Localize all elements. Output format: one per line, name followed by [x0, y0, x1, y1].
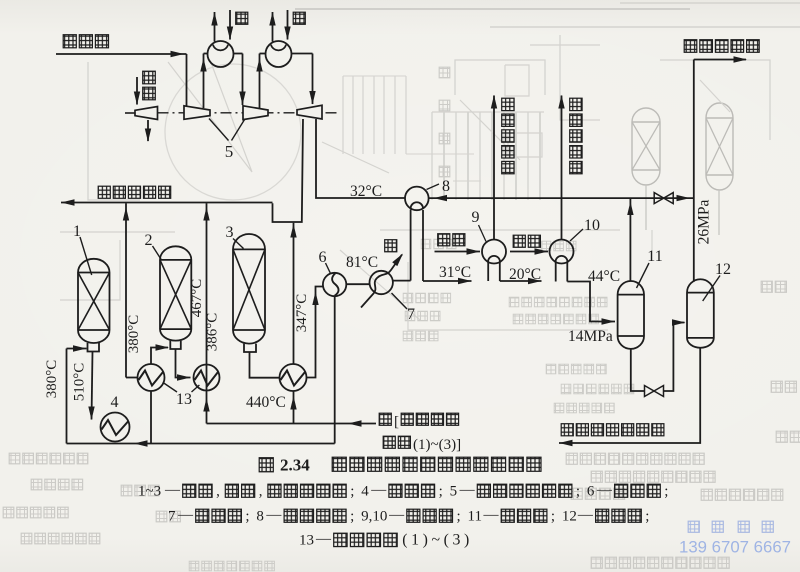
svg-text:2: 2	[145, 232, 153, 249]
svg-text:139 6707 6667: 139 6707 6667	[679, 538, 791, 557]
svg-text:12: 12	[562, 509, 577, 525]
svg-text:347°C: 347°C	[294, 294, 310, 333]
svg-text:—: —	[265, 507, 282, 523]
svg-text:9,10: 9,10	[361, 509, 387, 525]
svg-text:—: —	[459, 482, 476, 498]
svg-text:;: ;	[645, 509, 649, 525]
svg-text:;: ;	[576, 484, 580, 500]
svg-text:81°C: 81°C	[346, 254, 378, 271]
svg-text:26MPa: 26MPa	[696, 199, 713, 244]
svg-text:;: ;	[350, 484, 354, 500]
svg-text:386°C: 386°C	[205, 313, 221, 352]
svg-text:;: ;	[457, 509, 461, 525]
svg-text:32°C: 32°C	[350, 183, 382, 200]
svg-text:—: —	[315, 531, 332, 547]
svg-text:8: 8	[256, 509, 264, 525]
svg-text:31°C: 31°C	[439, 264, 471, 281]
svg-text:(1)~(3)]: (1)~(3)]	[413, 437, 461, 453]
svg-text:6: 6	[587, 484, 595, 500]
svg-text:—: —	[177, 507, 194, 523]
svg-text:11: 11	[647, 248, 662, 265]
svg-text:7: 7	[168, 509, 176, 525]
svg-text:20°C: 20°C	[509, 266, 541, 283]
svg-text:510°C: 510°C	[72, 363, 88, 402]
svg-text:467°C: 467°C	[189, 279, 205, 318]
svg-text:11: 11	[468, 509, 482, 525]
svg-text:2.34: 2.34	[280, 456, 310, 475]
svg-text:440°C: 440°C	[246, 394, 286, 411]
svg-text:4: 4	[361, 484, 369, 500]
svg-text:5: 5	[225, 142, 234, 161]
svg-text:380°C: 380°C	[44, 360, 60, 399]
svg-text:—: —	[577, 507, 594, 523]
svg-text:—: —	[596, 482, 613, 498]
svg-text:12: 12	[715, 261, 731, 278]
svg-text:4: 4	[111, 394, 119, 411]
svg-text:,: ,	[216, 484, 220, 500]
svg-text:;: ;	[350, 509, 354, 525]
svg-text:13: 13	[176, 391, 192, 408]
svg-text:7: 7	[407, 306, 415, 323]
svg-text:—: —	[388, 507, 405, 523]
svg-text:10: 10	[584, 217, 600, 234]
svg-text:8: 8	[442, 178, 450, 195]
svg-text:44°C: 44°C	[588, 268, 620, 285]
svg-text:;: ;	[439, 484, 443, 500]
svg-text:—: —	[483, 507, 500, 523]
svg-text:14MPa: 14MPa	[568, 328, 613, 345]
svg-text:—: —	[164, 482, 181, 498]
svg-text:1~3: 1~3	[138, 484, 161, 500]
svg-text:13: 13	[299, 533, 314, 549]
svg-text:;: ;	[245, 509, 249, 525]
svg-text:(1)~(3): (1)~(3)	[402, 532, 473, 549]
svg-text:9: 9	[472, 209, 480, 226]
svg-text:;: ;	[551, 509, 555, 525]
svg-text:—: —	[370, 482, 387, 498]
svg-text:5: 5	[450, 484, 458, 500]
svg-text:[: [	[394, 414, 399, 430]
svg-text:3: 3	[226, 224, 234, 241]
svg-text:;: ;	[664, 484, 668, 500]
svg-text:380°C: 380°C	[126, 315, 142, 354]
svg-text:,: ,	[259, 484, 263, 500]
